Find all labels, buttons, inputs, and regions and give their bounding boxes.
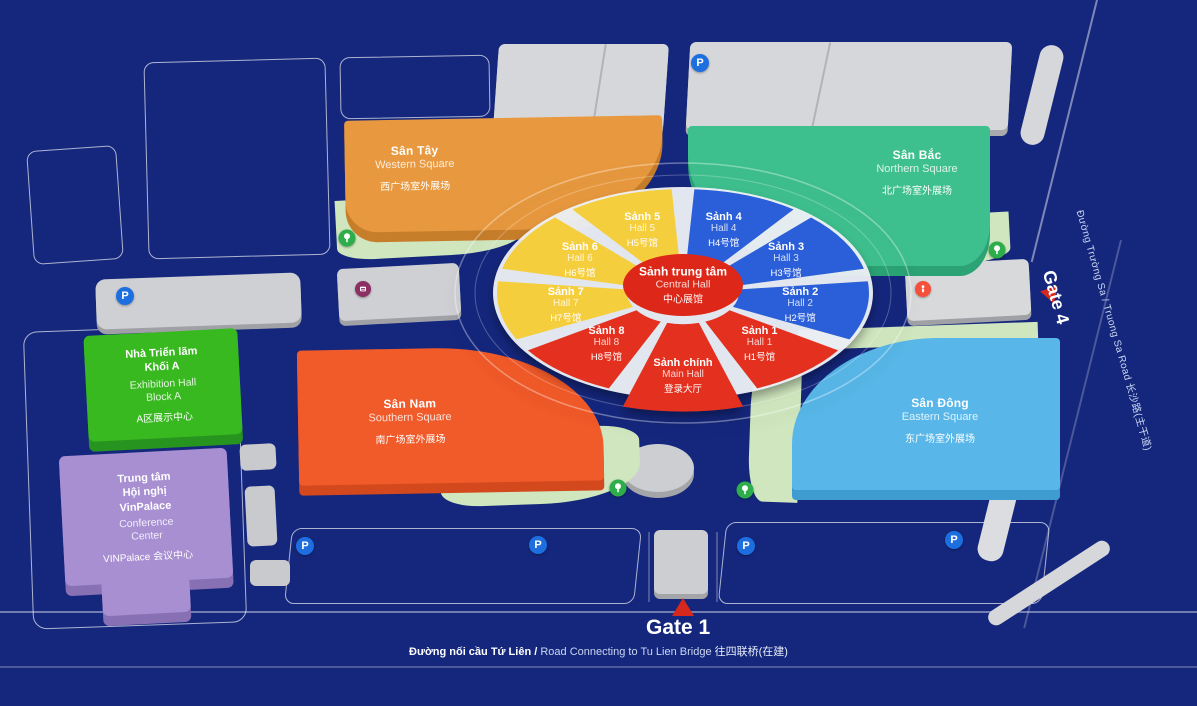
tree-icon [339,230,356,247]
gate1-road-line-left [648,532,650,602]
empty-lot-west-small [26,145,124,265]
vinpalace-vi-1: Trung tâm [117,470,171,487]
facility-icon [355,281,371,297]
parking-lot-south-left [284,528,642,604]
hall-label-hall3: Sảnh 3Hall 3H3号馆 [738,241,834,279]
road-strip-northeast [1018,43,1066,148]
parking-icon: P [737,537,755,555]
tree-icon [737,482,754,499]
central-hall-label: Sảnh trung tâm Central Hall 中心展馆 [623,265,743,306]
small-structure-3 [250,560,290,586]
road-line-bottom [0,666,1197,668]
block-a-vi-1: Nhà Triển lãm [125,344,198,362]
block-a-en-1: Exhibition Hall [129,376,196,393]
parking-icon: P [296,537,314,555]
hall-label-hall1: Sảnh 1Hall 1H1号馆 [712,325,808,363]
vinpalace-vi-3: VinPalace [119,498,171,515]
hall-label-hall6: Sảnh 6Hall 6H6号馆 [532,241,628,279]
vinpalace-en-1: Conference [119,515,174,531]
vinpalace-vi-2: Hội nghị [122,484,167,501]
parking-icon: P [691,54,709,72]
central-hall-complex: Sảnh trung tâm Central Hall 中心展馆 Sảnh 5H… [445,143,925,443]
hall-labels: Sảnh trung tâm Central Hall 中心展馆 Sảnh 5H… [445,143,925,443]
block-a-vi-2: Khối A [144,359,180,375]
parking-icon: P [116,287,134,305]
block-a-zh: A区展示中心 [136,407,193,425]
empty-lot-north-small [339,55,490,120]
road-tu-lien-vi: Đường nối cầu Tứ Liên / [409,646,537,658]
hall-label-hall2: Sảnh 2Hall 2H2号馆 [752,286,848,324]
small-structure-1 [239,443,276,471]
block-a-en-2: Block A [146,390,182,405]
vinpalace-zh: VINPalace 会议中心 [103,546,194,566]
road-tu-lien-en: Road Connecting to Tu Lien Bridge [537,646,714,658]
parking-icon: P [529,536,547,554]
tree-icon [989,242,1006,259]
central-hall-name-vi: Sảnh trung tâm [623,265,743,279]
vinpalace-annex [101,572,191,617]
empty-lot-northwest [143,58,330,260]
central-hall-name-zh: 中心展馆 [623,291,743,306]
vinpalace-label: Trung tâm Hội nghị VinPalace Conference … [59,448,234,587]
vinpalace-conference-center: Trung tâm Hội nghị VinPalace Conference … [59,448,234,587]
road-label-truong-sa: Đường Trường Sa / Truong Sa Road 长沙路(主干道… [1074,208,1157,452]
gate1-road-line-right [716,532,718,602]
road-label-tu-lien: Đường nối cầu Tứ Liên / Road Connecting … [0,643,1197,659]
exhibition-center-map: { "scene": { "background_color": "#15277… [0,0,1197,706]
road-tu-lien-zh: 往四联桥(在建) [715,646,788,658]
gate1-building [654,530,708,594]
hall-label-hall7: Sảnh 7Hall 7H7号馆 [518,286,614,324]
small-structure-2 [244,485,277,546]
gate1-label: Gate 1 [646,616,710,640]
block-a-label: Nhà Triển lãm Khối A Exhibition Hall Blo… [83,328,242,442]
gate1-arrow-icon [672,598,694,616]
vinpalace-en-2: Center [131,530,163,545]
exhibition-hall-block-a: Nhà Triển lãm Khối A Exhibition Hall Blo… [83,328,242,442]
hall-label-main-hall: Sảnh chínhMain Hall登录大厅 [635,357,731,395]
parking-area-northeast [686,42,1013,130]
central-hall-name-en: Central Hall [623,279,743,291]
parking-icon: P [945,531,963,549]
tree-icon [610,480,627,497]
parking-divider [811,42,831,129]
hall-label-hall5: Sảnh 5Hall 5H5号馆 [594,211,690,249]
hall-label-hall8: Sảnh 8Hall 8H8号馆 [558,325,654,363]
hall-label-hall4: Sảnh 4Hall 4H4号馆 [676,211,772,249]
info-icon [915,281,931,297]
